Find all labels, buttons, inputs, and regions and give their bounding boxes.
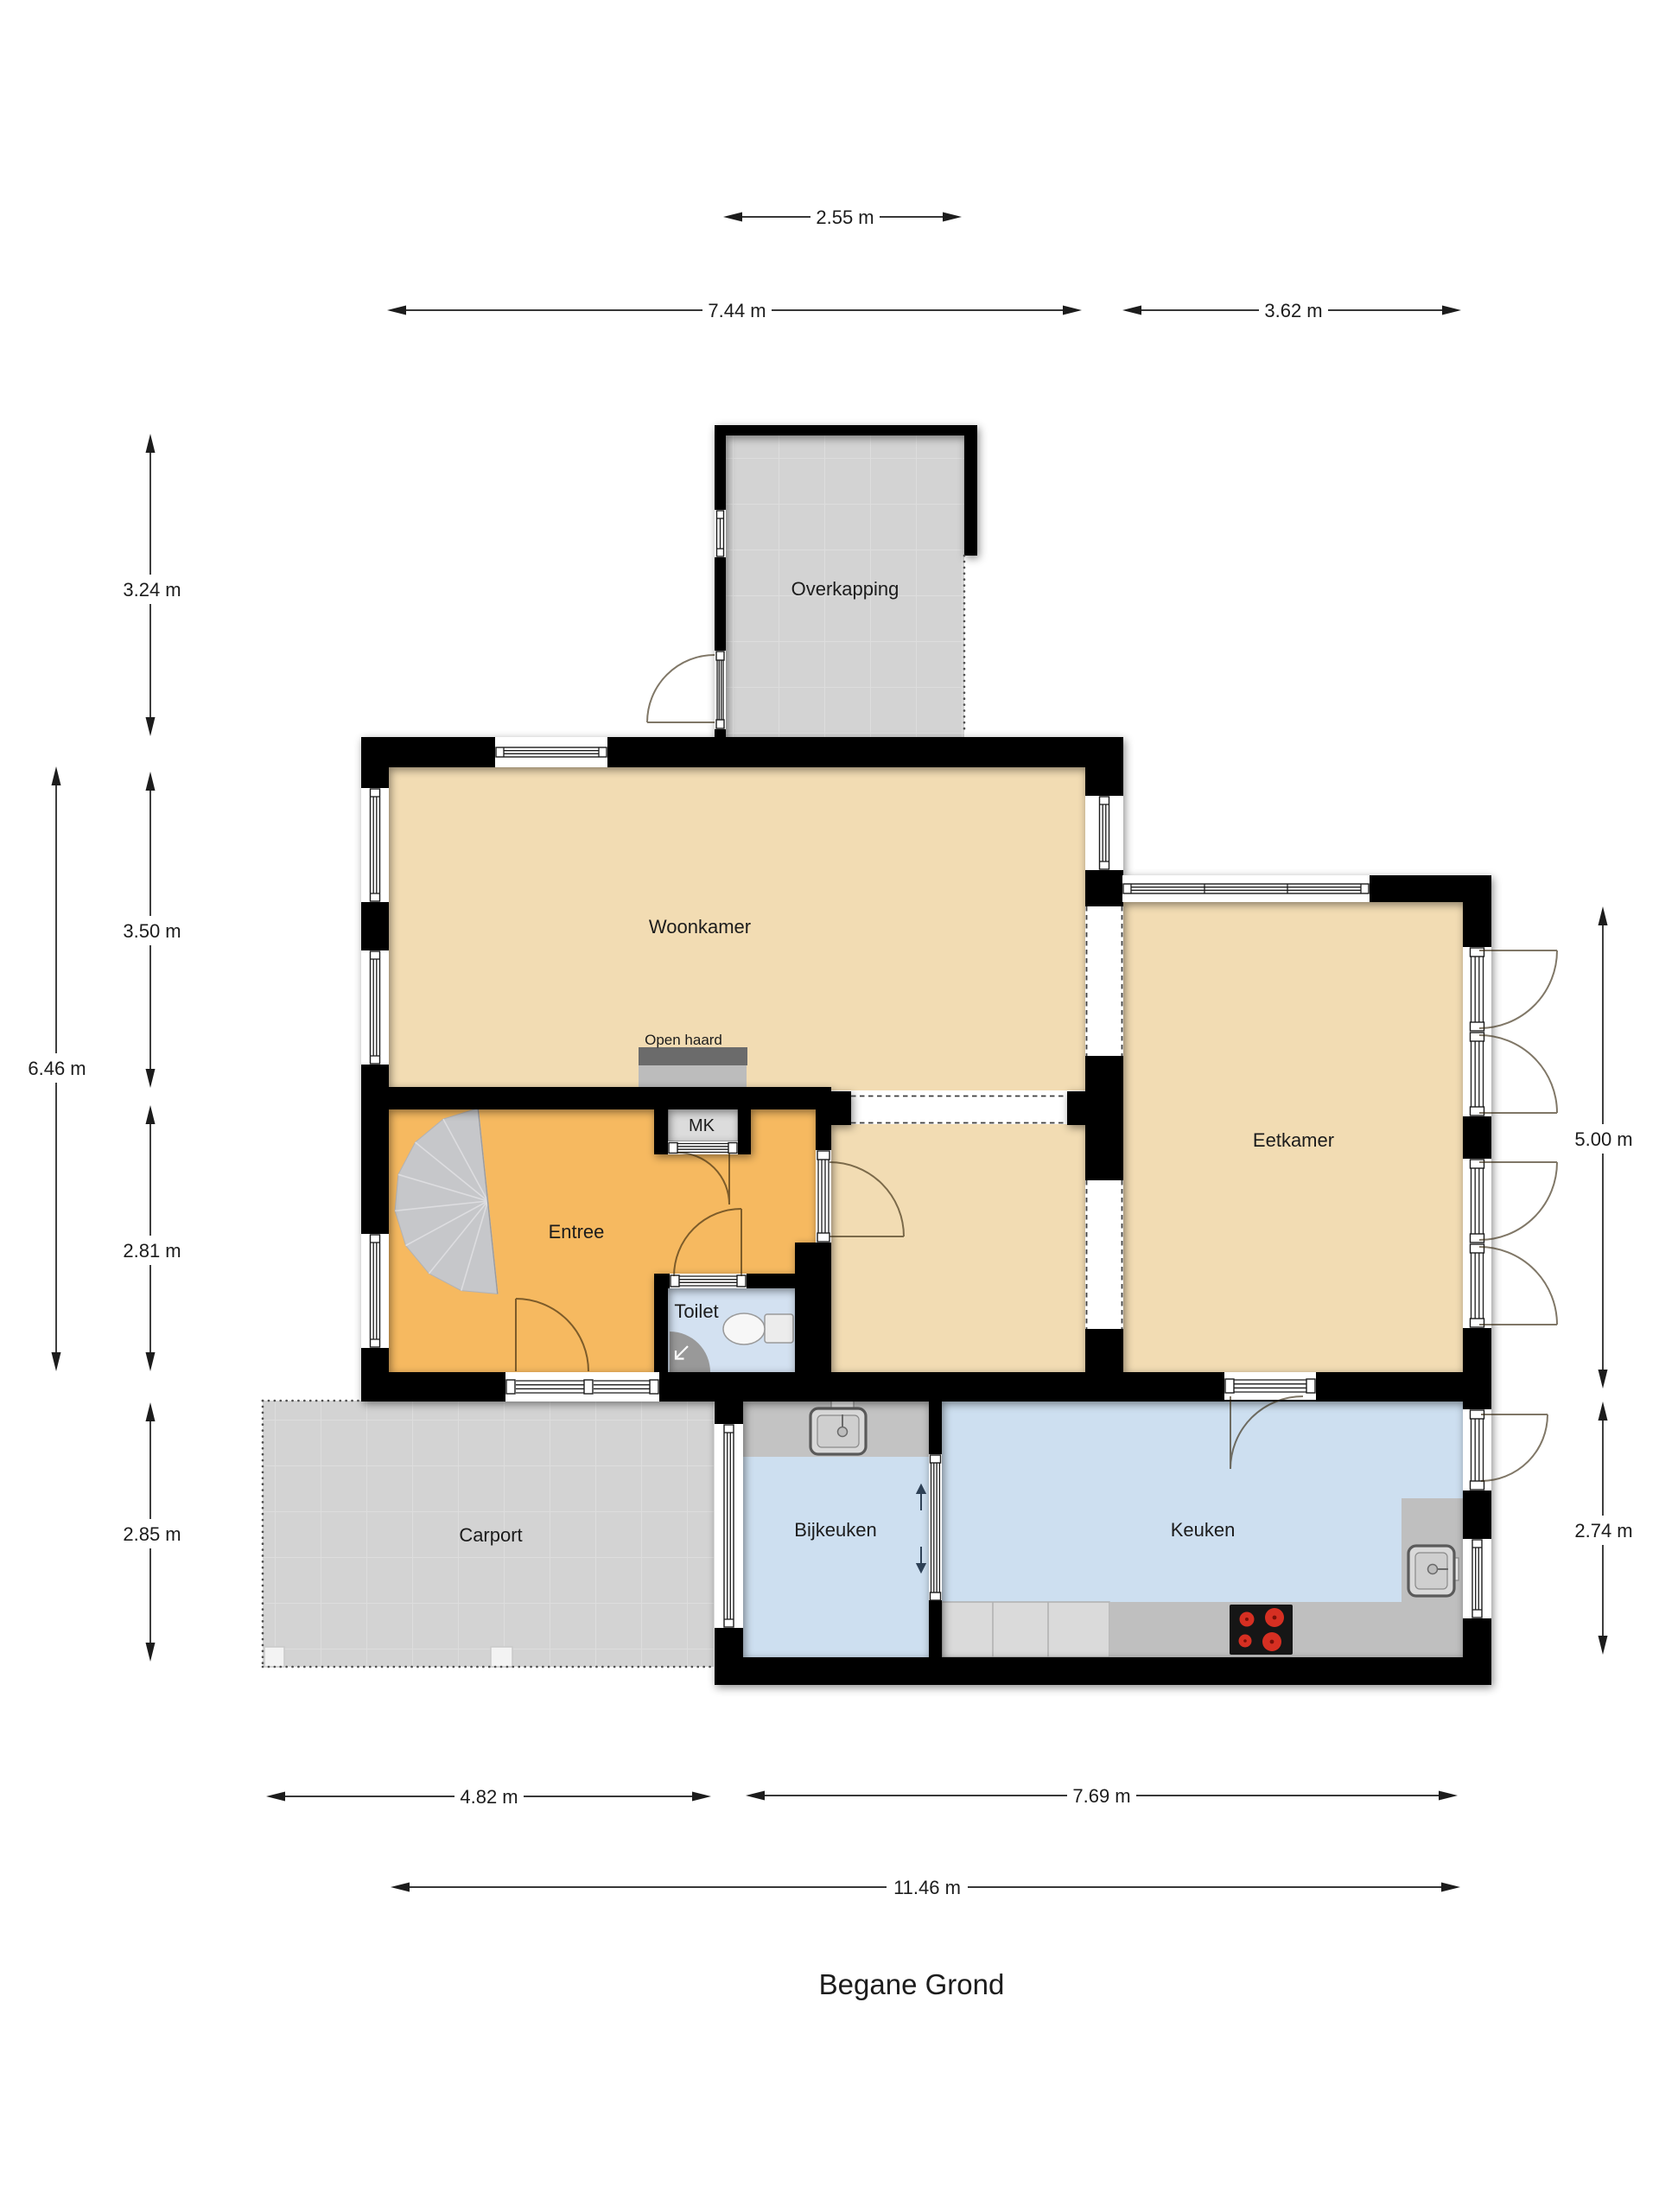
svg-text:Begane Grond: Begane Grond	[819, 1968, 1005, 2000]
svg-text:MK: MK	[689, 1116, 715, 1135]
svg-text:7.69 m: 7.69 m	[1072, 1785, 1130, 1807]
svg-text:Bijkeuken: Bijkeuken	[794, 1519, 876, 1541]
svg-text:Eetkamer: Eetkamer	[1253, 1129, 1334, 1151]
svg-text:6.46 m: 6.46 m	[28, 1058, 86, 1079]
svg-text:2.55 m: 2.55 m	[816, 207, 874, 228]
svg-text:7.44 m: 7.44 m	[708, 300, 766, 321]
svg-text:Overkapping: Overkapping	[791, 578, 899, 600]
svg-text:Keuken: Keuken	[1171, 1519, 1236, 1541]
svg-text:11.46 m: 11.46 m	[893, 1877, 961, 1898]
svg-text:Toilet: Toilet	[674, 1300, 718, 1322]
svg-text:2.85 m: 2.85 m	[123, 1523, 181, 1545]
svg-text:Woonkamer: Woonkamer	[649, 916, 751, 938]
svg-text:4.82 m: 4.82 m	[460, 1786, 518, 1808]
svg-text:3.24 m: 3.24 m	[123, 579, 181, 601]
svg-text:3.62 m: 3.62 m	[1264, 300, 1322, 321]
svg-text:2.74 m: 2.74 m	[1574, 1520, 1632, 1541]
svg-text:Carport: Carport	[459, 1524, 522, 1546]
svg-text:3.50 m: 3.50 m	[123, 920, 181, 942]
svg-text:2.81 m: 2.81 m	[123, 1240, 181, 1262]
svg-text:Open haard: Open haard	[645, 1032, 722, 1048]
svg-text:5.00 m: 5.00 m	[1574, 1128, 1632, 1150]
svg-text:Entree: Entree	[549, 1221, 605, 1243]
